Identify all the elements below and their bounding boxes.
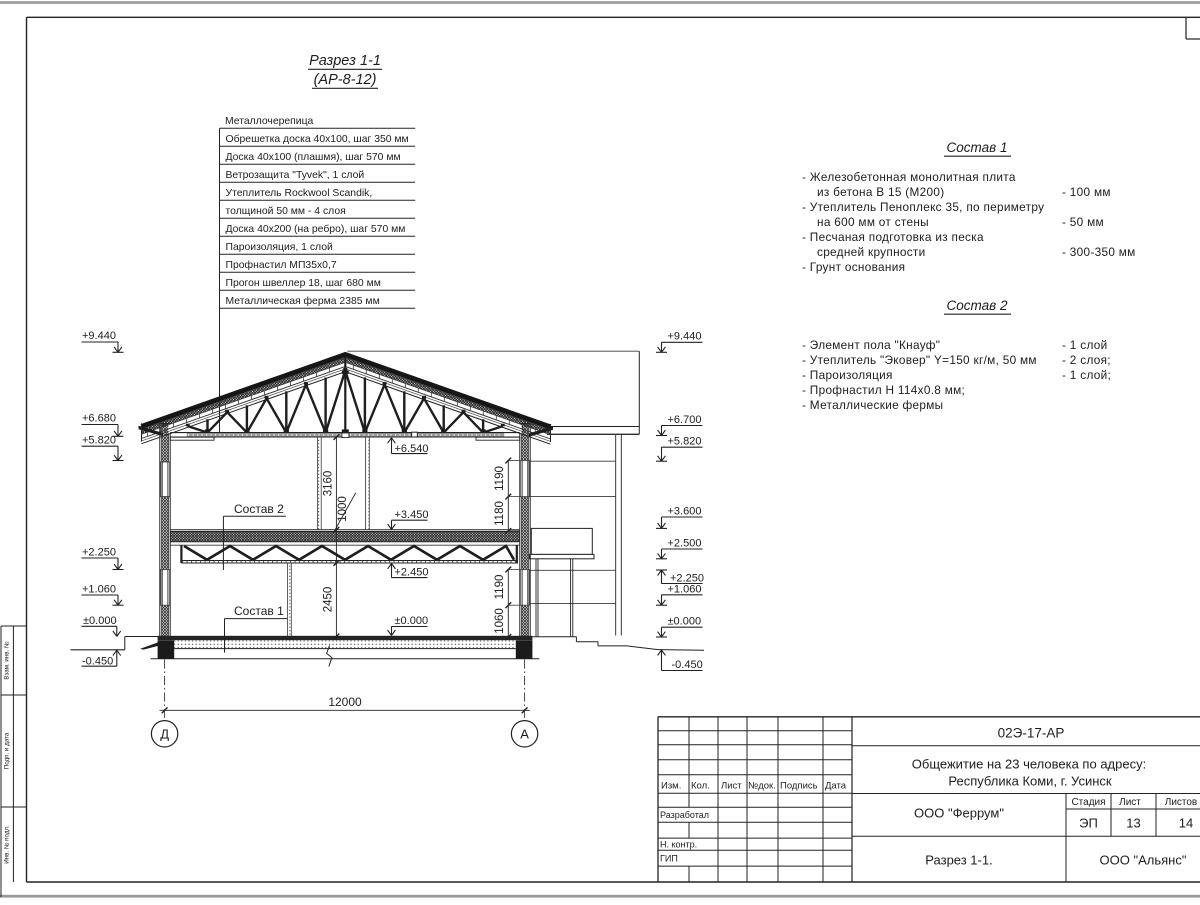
svg-text:Металлочерепица: Металлочерепица <box>225 116 314 127</box>
svg-text:- 1 слой: - 1 слой <box>1062 338 1108 352</box>
svg-text:толщиной 50 мм - 4 слоя: толщиной 50 мм - 4 слоя <box>226 206 346 217</box>
svg-text:Подпись: Подпись <box>780 781 818 792</box>
svg-text:+6.680: +6.680 <box>82 413 116 425</box>
svg-text:средней крупности: средней крупности <box>817 245 926 259</box>
svg-text:+6.700: +6.700 <box>668 414 702 426</box>
svg-text:Листов: Листов <box>1165 797 1198 808</box>
svg-text:- 50 мм: - 50 мм <box>1062 215 1104 229</box>
svg-text:Прогон швеллер 18, шаг 680 мм: Прогон швеллер 18, шаг 680 мм <box>226 278 381 289</box>
svg-text:- Железобетонная монолитная п: - Железобетонная монолитная плита <box>802 170 1016 184</box>
svg-text:3160: 3160 <box>323 471 335 497</box>
svg-text:Республика Коми, г. Усинск: Республика Коми, г. Усинск <box>948 774 1111 789</box>
svg-text:Разрез 1-1.: Разрез 1-1. <box>925 853 992 868</box>
svg-text:из бетона В 15 (М200): из бетона В 15 (М200) <box>817 185 944 199</box>
svg-text:1000: 1000 <box>337 496 349 522</box>
svg-text:±0.000: ±0.000 <box>395 615 429 627</box>
svg-text:- Пароизоляция: - Пароизоляция <box>802 368 893 382</box>
svg-text:1190: 1190 <box>494 575 506 600</box>
svg-text:1190: 1190 <box>494 466 506 491</box>
svg-text:Профнастил МП35х0,7: Профнастил МП35х0,7 <box>226 259 337 271</box>
svg-text:- 1 слой;: - 1 слой; <box>1062 368 1111 382</box>
svg-text:12000: 12000 <box>328 695 362 709</box>
svg-text:+5.820: +5.820 <box>668 436 702 448</box>
svg-text:Взам. инв. №: Взам. инв. № <box>4 641 11 680</box>
svg-text:Обрешетка доска 40х100, шаг 35: Обрешетка доска 40х100, шаг 350 мм <box>226 133 409 145</box>
svg-text:Состав 1: Состав 1 <box>947 140 1008 155</box>
svg-text:(АР-8-12): (АР-8-12) <box>314 72 377 88</box>
svg-text:13: 13 <box>1126 816 1140 831</box>
svg-text:Состав 1: Состав 1 <box>234 604 284 618</box>
svg-text:Дата: Дата <box>825 781 847 792</box>
svg-text:1180: 1180 <box>494 501 506 526</box>
svg-text:2450: 2450 <box>323 587 335 613</box>
svg-text:№док.: №док. <box>748 781 776 792</box>
svg-text:Лист: Лист <box>721 781 742 792</box>
svg-text:Разрез 1-1: Разрез 1-1 <box>309 53 381 69</box>
svg-text:Состав 2: Состав 2 <box>234 502 284 516</box>
svg-text:- 300-350 мм: - 300-350 мм <box>1062 245 1136 259</box>
svg-text:+1.060: +1.060 <box>668 583 702 595</box>
svg-text:Стадия: Стадия <box>1071 797 1105 808</box>
svg-text:на 600 мм от стены: на 600 мм от стены <box>817 215 929 229</box>
svg-text:- Грунт основания: - Грунт основания <box>802 260 905 274</box>
svg-text:- Песчаная подготовка из песка: - Песчаная подготовка из песка <box>802 230 984 244</box>
svg-text:- 100 мм: - 100 мм <box>1062 185 1111 199</box>
svg-text:ГИП: ГИП <box>660 854 678 864</box>
svg-text:+9.440: +9.440 <box>668 331 702 343</box>
svg-text:- Утеплитель Пеноплекс 35, по: - Утеплитель Пеноплекс 35, по периметру <box>802 200 1044 214</box>
svg-text:Общежитие на 23 человека по ад: Общежитие на 23 человека по адресу: <box>912 757 1146 772</box>
svg-text:+1.060: +1.060 <box>82 584 116 596</box>
svg-text:Изм.: Изм. <box>661 781 681 792</box>
svg-text:+2.250: +2.250 <box>82 547 116 559</box>
svg-text:ЭП: ЭП <box>1079 816 1098 831</box>
svg-text:ООО "Феррум": ООО "Феррум" <box>914 806 1004 821</box>
svg-text:ООО "Альянс": ООО "Альянс" <box>1100 853 1187 868</box>
svg-text:Кол.: Кол. <box>691 781 710 792</box>
svg-text:±0.000: ±0.000 <box>83 615 117 627</box>
svg-text:- 2 слоя;: - 2 слоя; <box>1062 353 1111 367</box>
svg-text:Разработал: Разработал <box>660 810 709 820</box>
svg-text:Доска 40х100 (плашмя), шаг 570: Доска 40х100 (плашмя), шаг 570 мм <box>226 152 401 163</box>
svg-text:Подп. и дата: Подп. и дата <box>4 732 11 769</box>
svg-text:-0.450: -0.450 <box>82 656 113 668</box>
svg-text:Пароизоляция, 1 слой: Пароизоляция, 1 слой <box>226 242 333 253</box>
svg-text:+9.440: +9.440 <box>82 330 116 342</box>
svg-text:- Металлические фермы: - Металлические фермы <box>802 398 943 412</box>
svg-text:Инв. № подл.: Инв. № подл. <box>4 825 11 864</box>
svg-text:Н. контр.: Н. контр. <box>660 840 697 850</box>
svg-text:Доска 40х200 (на ребро), шаг 5: Доска 40х200 (на ребро), шаг 570 мм <box>226 223 406 235</box>
svg-text:+3.600: +3.600 <box>668 506 702 518</box>
svg-text:14: 14 <box>1179 816 1193 831</box>
svg-text:- Утеплитель "Эковер" Y=150 кг: - Утеплитель "Эковер" Y=150 кг/м, 50 мм <box>802 353 1037 367</box>
svg-text:Ветрозащита "Tyvek", 1 слой: Ветрозащита "Tyvek", 1 слой <box>226 170 365 181</box>
svg-text:- Элемент пола "Кнауф": - Элемент пола "Кнауф" <box>802 338 940 352</box>
svg-text:- Профнастил Н 114х0.8 мм;: - Профнастил Н 114х0.8 мм; <box>802 383 965 397</box>
svg-text:Утеплитель Rockwool Scandik,: Утеплитель Rockwool Scandik, <box>226 188 373 199</box>
svg-text:+2.450: +2.450 <box>395 567 429 579</box>
svg-text:-0.450: -0.450 <box>672 659 703 671</box>
svg-text:+3.450: +3.450 <box>395 509 429 521</box>
svg-text:+5.820: +5.820 <box>82 435 116 447</box>
svg-text:±0.000: ±0.000 <box>668 616 702 628</box>
svg-text:Лист: Лист <box>1119 797 1141 808</box>
svg-text:А: А <box>520 727 529 742</box>
svg-text:1060: 1060 <box>494 608 506 634</box>
svg-text:Состав 2: Состав 2 <box>947 298 1008 313</box>
svg-text:Д: Д <box>160 727 169 742</box>
svg-text:+2.500: +2.500 <box>668 538 702 550</box>
svg-text:+6.540: +6.540 <box>395 443 429 455</box>
svg-text:02Э-17-АР: 02Э-17-АР <box>998 726 1065 741</box>
svg-text:Металлическая ферма 2385 мм: Металлическая ферма 2385 мм <box>226 295 380 307</box>
